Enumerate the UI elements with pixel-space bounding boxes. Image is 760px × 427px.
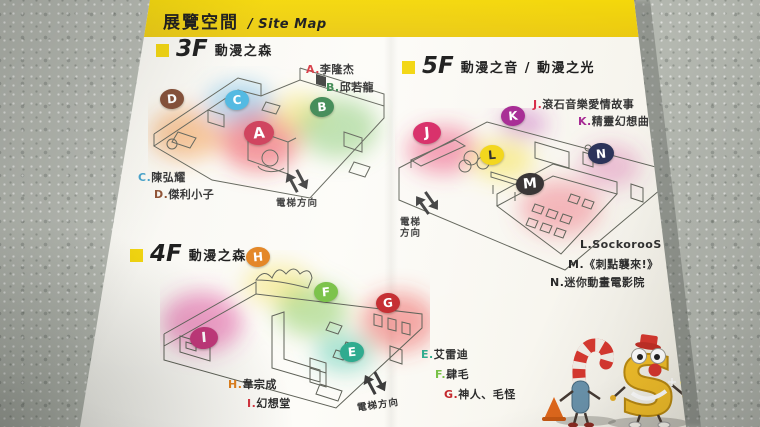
elevator-label-line2: 方向 (400, 228, 421, 239)
legend-item-l: L.SockorooS (580, 238, 662, 251)
elevator-direction-3f: 電梯方向 (276, 168, 318, 209)
legend-item-m: M.《刺點襲來!》 (568, 256, 659, 272)
elevator-label: 電梯方向 (276, 198, 318, 209)
legend-letter: C. (138, 171, 151, 184)
floor-name: 動漫之森 (189, 245, 247, 264)
title-zh: 展覽空間 (163, 8, 239, 33)
legend-name: 迷你動畫電影院 (564, 276, 645, 289)
legend-letter: I. (247, 397, 256, 410)
photo-of-brochure: 展覽空間 / Site Map 3F 動漫之森 (0, 0, 760, 427)
floor-bullet-icon (402, 61, 415, 74)
legend-item-k: K.精靈幻想曲 (578, 113, 649, 129)
red-nose (649, 364, 662, 377)
elevator-direction-4f: 電梯方向 (352, 367, 399, 413)
candy-cane-mascot (542, 345, 608, 427)
elevator-label-line1: 電梯 (400, 217, 421, 228)
elevator-arrows-icon (282, 168, 312, 194)
legend-letter: J. (533, 98, 542, 111)
legend-name: 神人、毛怪 (458, 388, 516, 401)
legend-letter: A. (306, 63, 320, 76)
floor-name: 動漫之森 (215, 40, 273, 59)
legend-letter: M. (568, 258, 584, 271)
legend-item-g: G.神人、毛怪 (444, 386, 516, 402)
legend-name: 韋宗成 (242, 378, 277, 391)
legend-letter: N. (550, 276, 564, 289)
legend-name: 幻想堂 (256, 397, 291, 410)
legend-name: 《刺點襲來!》 (584, 258, 659, 271)
legend-letter: H. (228, 378, 242, 391)
legend-letter: G. (444, 388, 458, 401)
legend-name: 艾雷迪 (434, 348, 469, 361)
legend-letter: E. (421, 348, 434, 361)
elevator-direction-5f: 電梯 方向 (400, 190, 442, 239)
legend-item-d: D.傑利小子 (154, 186, 214, 202)
svg-text:S: S (618, 340, 677, 427)
legend-name: 滾石音樂愛情故事 (542, 98, 634, 111)
legend-letter: K. (578, 115, 592, 128)
page-title: 展覽空間 / Site Map (163, 8, 327, 33)
legend-letter: B. (326, 81, 340, 94)
legend-item-h: H.韋宗成 (228, 376, 277, 392)
legend-name: 李隆杰 (320, 63, 355, 76)
floor-section-4f-title: 4F 動漫之森 (130, 243, 247, 266)
legend-item-n: N.迷你動畫電影院 (550, 274, 645, 290)
legend-item-i: I.幻想堂 (247, 395, 291, 411)
legend-name: SockorooS (592, 238, 662, 251)
floor-section-5f-title: 5F 動漫之音 / 動漫之光 (402, 55, 595, 78)
elevator-arrows-icon (358, 368, 391, 398)
legend-item-e: E.艾雷迪 (421, 346, 468, 362)
floor-bullet-icon (130, 249, 143, 262)
s-shape-mascot: S (610, 333, 688, 427)
legend-name: 肆毛 (446, 368, 469, 381)
legend-letter: D. (154, 188, 168, 201)
legend-name: 精靈幻想曲 (592, 115, 650, 128)
floor-section-3f-title: 3F 動漫之森 (156, 38, 273, 61)
legend-item-j: J.滾石音樂愛情故事 (533, 96, 634, 112)
legend-item-f: F.肆毛 (435, 366, 469, 382)
legend-letter: L. (580, 238, 592, 251)
legend-item-a: A.李隆杰 (306, 61, 354, 77)
floor-number: 4F (150, 243, 182, 266)
legend-name: 邱若龍 (340, 81, 375, 94)
floor-number: 5F (422, 55, 454, 78)
legend-item-c: C.陳弘耀 (138, 169, 186, 185)
legend-letter: F. (435, 368, 446, 381)
floor-bullet-icon (156, 44, 169, 57)
elevator-arrows-icon (412, 190, 442, 216)
title-en: / Site Map (248, 17, 327, 32)
floor-name: 動漫之音 / 動漫之光 (461, 57, 595, 76)
legend-name: 傑利小子 (168, 188, 214, 201)
legend-item-b: B.邱若龍 (326, 79, 374, 95)
legend-name: 陳弘耀 (151, 171, 186, 184)
floor-number: 3F (176, 38, 208, 61)
